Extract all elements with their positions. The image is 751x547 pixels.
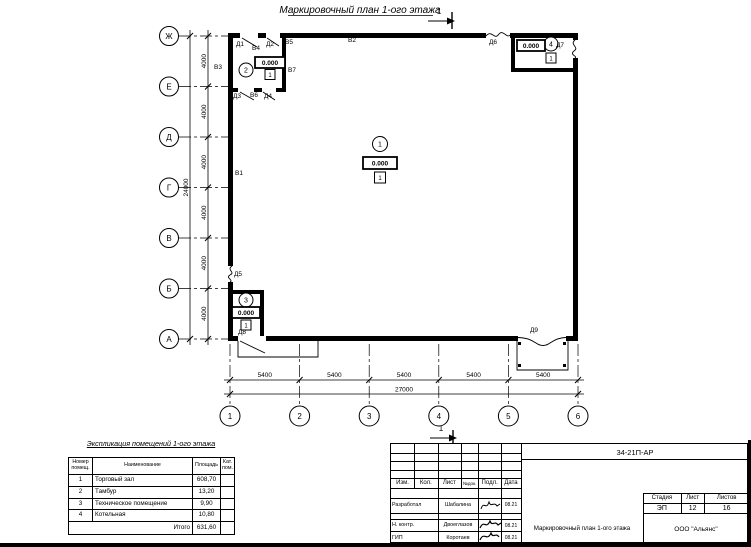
tb-line <box>391 461 521 462</box>
elevation-value: 0.000 <box>238 310 255 317</box>
dim-col-spacing: 5400 <box>258 372 273 379</box>
door-label-d7: Д7 <box>556 42 564 49</box>
wall-label-v2: В2 <box>348 37 356 44</box>
elevation-value: 0.000 <box>372 161 389 168</box>
tb-line <box>521 459 749 460</box>
sheet-number: 12 <box>681 505 704 512</box>
door-label-d8: Д8 <box>238 329 246 336</box>
room-row-area: 13,20 <box>193 487 221 499</box>
door-label-d3: Д3 <box>233 93 241 100</box>
wall-label-v3: В3 <box>214 64 222 71</box>
dim-row-total: 24000 <box>183 178 190 196</box>
room-row-category <box>221 487 234 499</box>
room-row-category <box>221 499 234 511</box>
svg-text:6: 6 <box>576 412 581 421</box>
tb-date: 08.21 <box>501 523 521 529</box>
room-row-number: 4 <box>69 510 93 522</box>
tb-date: 08.21 <box>501 502 521 508</box>
svg-text:5: 5 <box>506 412 511 421</box>
tb-col-izm: Изм. <box>391 480 414 486</box>
svg-text:3: 3 <box>367 412 372 421</box>
company-name: ООО "Альянс" <box>643 526 749 533</box>
col-header-name: Наименование <box>93 458 193 475</box>
dim-row-spacing: 4000 <box>201 155 208 170</box>
section-arrow-icon <box>447 18 455 25</box>
room-row-area: 10,80 <box>193 510 221 522</box>
signature-icon <box>478 530 502 544</box>
svg-text:1: 1 <box>228 412 233 421</box>
door-label-d1: Д1 <box>236 41 244 48</box>
room-row-area: 9,90 <box>193 499 221 511</box>
room-row-area: 608,70 <box>193 475 221 487</box>
dim-row-spacing: 4000 <box>201 306 208 321</box>
tb-line <box>643 513 749 514</box>
room-row-name: Тамбур <box>93 487 193 499</box>
door-label-d4: Д4 <box>264 93 272 100</box>
tb-col-data: Дата <box>501 480 521 486</box>
svg-text:Е: Е <box>166 83 171 92</box>
explication-table: Номер помещ. Наименование Площадь Кат. п… <box>68 457 235 535</box>
tb-line <box>391 498 521 499</box>
stage-value: ЭП <box>643 505 681 512</box>
room-row-name: Техническое помещение <box>93 499 193 511</box>
signature-icon <box>479 498 501 513</box>
tb-col-podp: Подл. <box>478 480 501 486</box>
dimension-ticks <box>187 33 581 397</box>
door-label-d6: Д6 <box>489 39 497 46</box>
building-walls <box>228 33 578 341</box>
tb-line <box>391 513 521 514</box>
wall-label-v4: В4 <box>252 45 260 52</box>
svg-text:4: 4 <box>437 412 442 421</box>
dim-row-spacing: 4000 <box>201 205 208 220</box>
dim-row-spacing: 4000 <box>201 54 208 69</box>
svg-text:Б: Б <box>166 285 171 294</box>
room-row-number: 3 <box>69 499 93 511</box>
svg-text:Г: Г <box>167 184 172 193</box>
room-marker-3: 3 0.000 1 <box>232 293 260 330</box>
total-area: 631,60 <box>193 522 221 534</box>
dim-col-spacing: 5400 <box>536 372 551 379</box>
wall-label-v5: В5 <box>285 39 293 46</box>
room-number: 4 <box>549 42 553 49</box>
wall-joint-marks <box>229 35 577 342</box>
dim-col-spacing: 5400 <box>397 372 412 379</box>
drawing-name: Маркировочный план 1-ого этажа <box>523 525 641 532</box>
col-axis-labels: 1 2 3 4 5 6 <box>228 412 581 421</box>
plan-title: Маркировочный план 1-ого этажа <box>279 5 441 16</box>
tb-col-kol: Кол. <box>414 480 438 486</box>
elevation-value: 0.000 <box>262 60 279 67</box>
room-marker-1: 1 0.000 1 <box>363 137 397 184</box>
explication-title: Экспликация помещений 1-ого этажа <box>70 439 232 448</box>
tb-role: ГИП <box>392 535 437 541</box>
room-marker-2: 2 0.000 1 <box>239 57 285 80</box>
title-block: Изм. Кол. Лист №док. Подл. Дата Разработ… <box>390 443 748 543</box>
tb-date: 08.21 <box>501 535 521 541</box>
tb-name: Шабалина <box>438 502 479 508</box>
col-axis-bubbles <box>220 406 588 426</box>
col-header-category: Кат. пом. <box>221 458 234 475</box>
door-label-d5: Д5 <box>234 271 242 278</box>
svg-text:Ж: Ж <box>165 32 173 41</box>
dim-row-spacing: 4000 <box>201 104 208 119</box>
room-row-name: Торговый зал <box>93 475 193 487</box>
room-row-number: 2 <box>69 487 93 499</box>
dim-col-total: 27000 <box>395 387 413 394</box>
wall-label-v6: В6 <box>250 92 258 99</box>
room-row-category <box>221 510 234 522</box>
tb-line <box>391 453 521 454</box>
room-number: 1 <box>378 142 382 149</box>
total-category <box>221 522 234 534</box>
tb-col-ndoc: №док. <box>461 481 478 486</box>
col-header-area: Площадь <box>193 458 221 475</box>
tb-name: Двоеглазов <box>438 522 479 528</box>
room-row-category <box>221 475 234 487</box>
svg-text:2: 2 <box>297 412 302 421</box>
dim-col-spacing: 5400 <box>327 372 342 379</box>
room-row-number: 1 <box>69 475 93 487</box>
room-number: 3 <box>244 298 248 305</box>
sheet-bottom-border <box>0 543 751 547</box>
dim-row-spacing: 4000 <box>201 256 208 271</box>
document-code: 34-21П-АР <box>521 448 749 457</box>
wall-label-v1: В1 <box>235 170 243 177</box>
sheets-total: 16 <box>704 505 749 512</box>
tb-name: Коротаев <box>438 535 479 541</box>
tb-role: Н. контр. <box>392 522 437 528</box>
door-label-d9: Д9 <box>530 327 538 334</box>
tb-col-list: Лист <box>438 480 461 486</box>
tb-role: Разработал <box>392 502 437 508</box>
room-number: 2 <box>244 68 248 75</box>
tb-line <box>391 488 521 489</box>
sheets-label: Листов <box>704 495 749 501</box>
dim-col-spacing: 5400 <box>466 372 481 379</box>
svg-text:Д: Д <box>166 133 172 142</box>
col-header-number: Номер помещ. <box>69 458 93 475</box>
section-cut-number: 1 <box>437 7 442 16</box>
svg-text:А: А <box>166 335 172 344</box>
opening-breaks <box>228 33 575 346</box>
wall-label-v7: В7 <box>288 67 296 74</box>
total-label: Итого <box>69 522 193 534</box>
svg-text:В: В <box>166 234 171 243</box>
sheet-label: Лист <box>681 495 704 501</box>
drawing-sheet: Маркировочный план 1-ого этажа 1 1 <box>0 0 751 547</box>
stage-label: Стадия <box>643 495 681 501</box>
room-marker-4: 4 0.000 1 <box>517 37 558 63</box>
door-label-d2: Д2 <box>266 41 274 48</box>
room-row-name: Котельная <box>93 510 193 522</box>
tb-line <box>438 444 439 544</box>
tb-line <box>391 470 521 471</box>
elevation-value: 0.000 <box>523 43 540 50</box>
